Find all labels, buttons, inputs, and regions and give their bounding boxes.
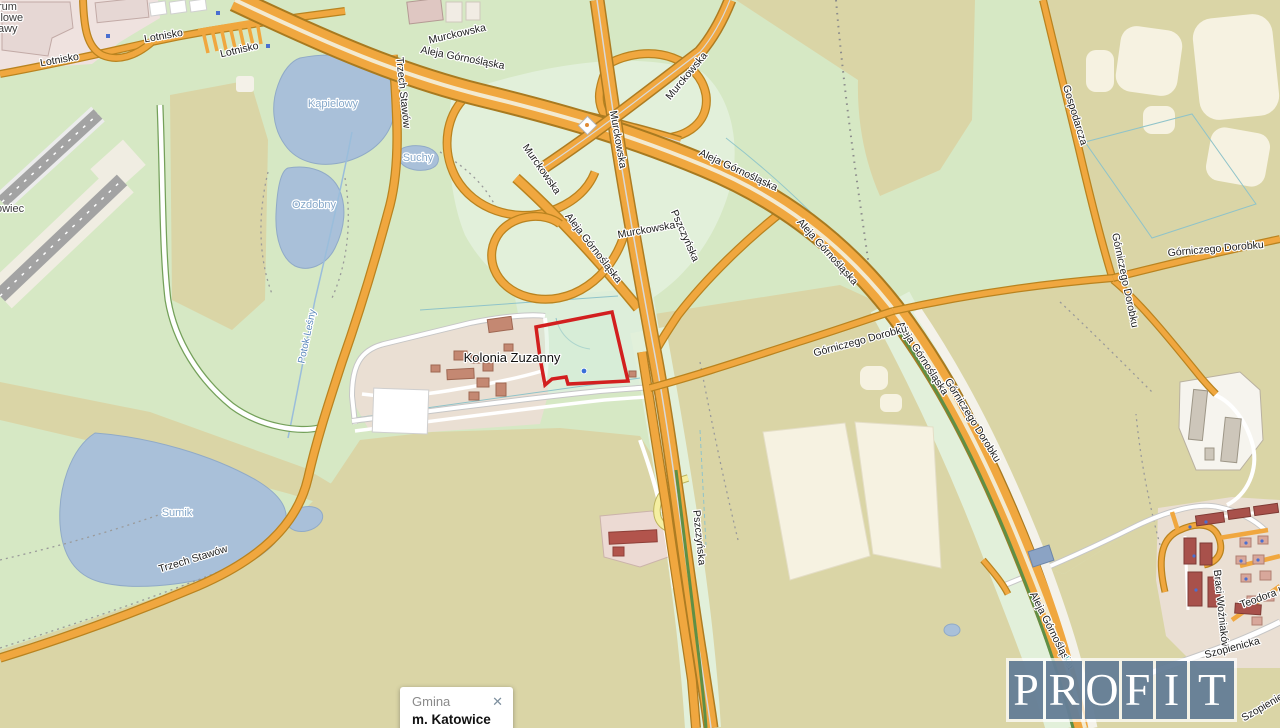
parcel-marker <box>581 368 587 374</box>
poi-marker <box>106 34 110 38</box>
poi-dot <box>1244 541 1247 544</box>
lake-label: Ozdobny <box>292 199 337 211</box>
clearing <box>236 76 254 92</box>
clearing <box>1114 24 1185 98</box>
clearing <box>860 366 888 390</box>
place-label: Kolonia Zuzanny <box>464 350 561 365</box>
poi-dot <box>1192 554 1195 557</box>
watermark-letter: P <box>1009 661 1043 719</box>
lake-label: Sumik <box>162 507 193 519</box>
region-popup-value: m. Katowice <box>412 712 503 727</box>
building <box>446 2 462 22</box>
poi-dot <box>1244 577 1247 580</box>
poi-marker <box>266 44 270 48</box>
lake-label: Suchy <box>403 152 434 164</box>
map-viewport: rumlloweawyowiecLotniskoLotniskoLotnisko… <box>0 0 1280 728</box>
region-popup: Gmina ✕ m. Katowice <box>400 687 513 728</box>
region-popup-title: Gmina <box>412 694 450 709</box>
building <box>466 2 480 20</box>
watermark-letter: T <box>1190 661 1234 719</box>
mall-label-fragment: awy <box>0 23 18 35</box>
poi-dot <box>1204 520 1207 523</box>
building <box>431 365 440 372</box>
building <box>407 0 443 24</box>
poi-dot <box>1239 559 1242 562</box>
lake-label: Kąpielowy <box>308 98 359 110</box>
building <box>189 0 206 12</box>
building <box>149 1 167 16</box>
poi-marker <box>216 11 220 15</box>
building <box>447 368 474 379</box>
building <box>1205 448 1214 460</box>
parking-lot <box>372 388 429 434</box>
landuse-scrub <box>170 80 268 330</box>
building <box>487 316 513 332</box>
poi-dot <box>1260 539 1263 542</box>
watermark-letter: F <box>1122 661 1153 719</box>
watermark-letter: I <box>1156 661 1187 719</box>
clearing <box>880 394 902 412</box>
building <box>477 378 489 387</box>
place-label-fragment: owiec <box>0 203 25 215</box>
clearing <box>1191 12 1280 122</box>
selected-parcel-outline[interactable] <box>536 312 628 385</box>
monument-dot <box>585 123 589 127</box>
watermark-letter: O <box>1085 661 1119 719</box>
building <box>496 383 506 396</box>
apartment-block <box>1184 538 1196 564</box>
depot-building <box>609 530 658 544</box>
building <box>613 547 624 556</box>
building <box>629 371 636 377</box>
watermark-logo: PROFIT <box>1006 658 1237 722</box>
building <box>469 392 479 400</box>
apartment-block <box>1200 543 1212 565</box>
building <box>169 0 187 14</box>
house <box>1260 571 1271 580</box>
poi-dot <box>1194 588 1197 591</box>
map-canvas[interactable]: rumlloweawyowiecLotniskoLotniskoLotnisko… <box>0 0 1280 728</box>
pond <box>944 624 960 636</box>
clearing <box>1086 50 1114 92</box>
poi-dot <box>1256 558 1259 561</box>
watermark-letter: R <box>1046 661 1082 719</box>
house <box>1252 617 1262 625</box>
close-icon[interactable]: ✕ <box>492 695 503 708</box>
poi-dot <box>1188 525 1191 528</box>
